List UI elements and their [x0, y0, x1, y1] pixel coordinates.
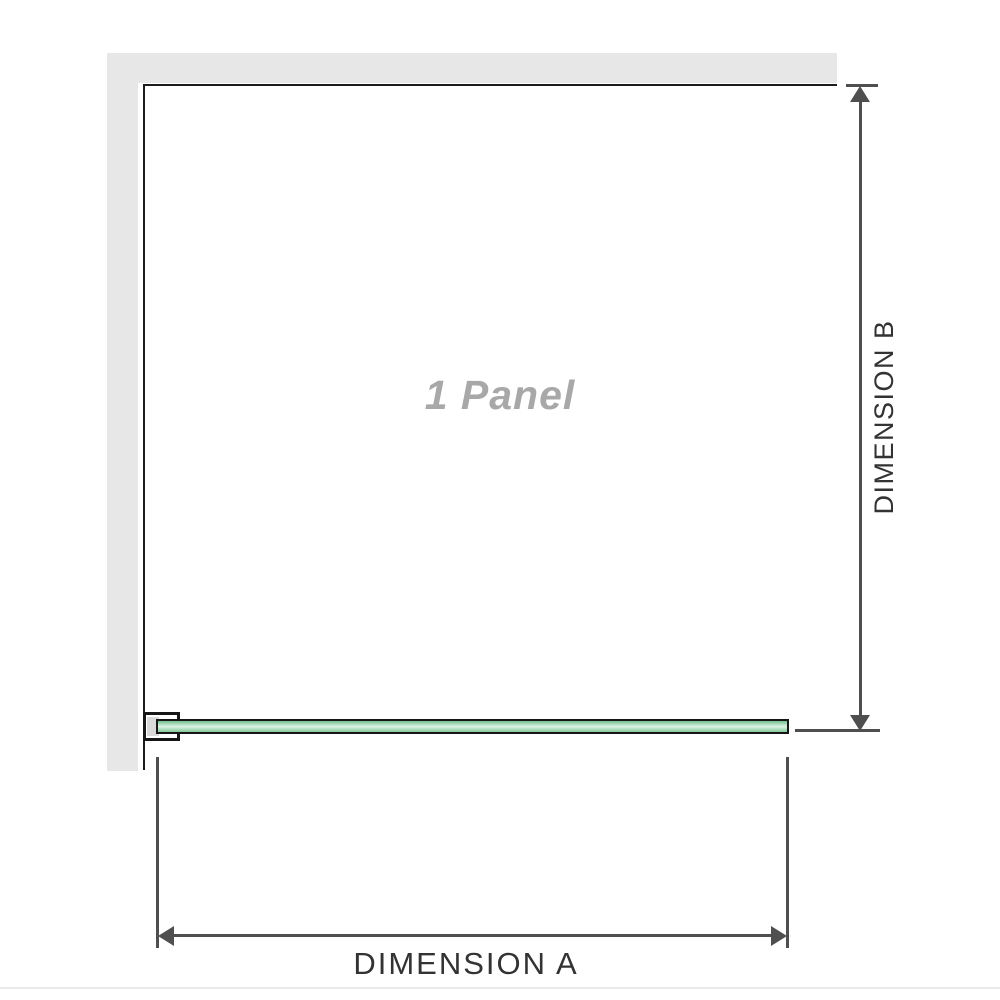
bottom-divider: [0, 987, 1000, 989]
dimension-a-extension-left: [156, 757, 159, 948]
dimension-a-extension-right: [786, 757, 789, 948]
dimension-b-label: DIMENSION B: [868, 267, 900, 567]
wall-left: [107, 53, 138, 771]
arrow-up-icon: [850, 86, 870, 102]
arrow-down-icon: [850, 715, 870, 731]
panel-diagram: 1 Panel DIMENSION B DIMENSION A: [0, 0, 1000, 1000]
panel-outline-top: [143, 84, 837, 86]
arrow-left-icon: [158, 926, 174, 946]
glass-panel: [156, 719, 789, 734]
panel-count-label: 1 Panel: [300, 372, 700, 419]
dimension-a-label: DIMENSION A: [266, 946, 666, 982]
panel-outline-left: [143, 84, 145, 770]
arrow-right-icon: [771, 926, 787, 946]
wall-top: [107, 53, 837, 83]
dimension-b-line: [859, 98, 862, 720]
dimension-a-line: [166, 934, 776, 937]
